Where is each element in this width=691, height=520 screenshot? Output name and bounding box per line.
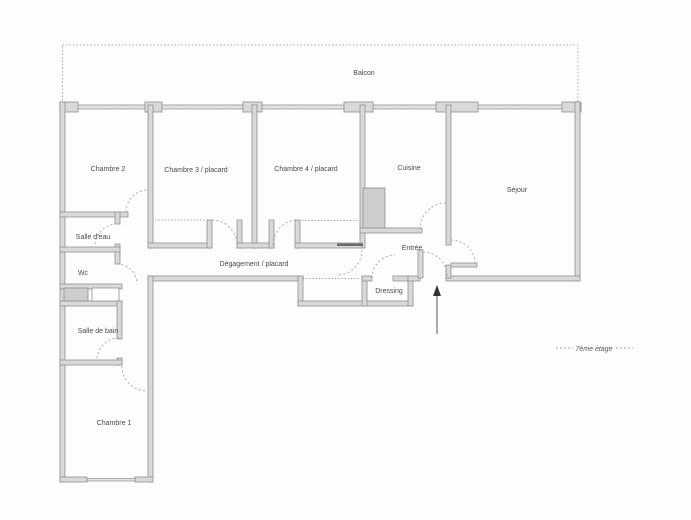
room-label-dressing: Dressing bbox=[375, 288, 403, 295]
wall-living-south bbox=[446, 276, 580, 281]
window-bedroom1 bbox=[87, 479, 135, 482]
door-arc-living bbox=[451, 240, 475, 264]
balcony-outline bbox=[63, 45, 579, 105]
wall-living-west bbox=[446, 265, 451, 278]
room-label-bathroom: Salle de bain bbox=[78, 328, 119, 335]
door-arc-bedroom4 bbox=[273, 220, 298, 245]
walls bbox=[60, 102, 581, 482]
wall-exterior-right bbox=[575, 102, 580, 281]
wall-corridor-north bbox=[237, 243, 274, 248]
wall-bathroom-south bbox=[60, 360, 122, 365]
door-jamb bbox=[451, 263, 477, 267]
door-arc-bedroom2 bbox=[126, 190, 148, 212]
wc-shaft bbox=[92, 288, 119, 301]
floor-plan-drawing: Balcon Chambre 2 Chambre 3 / placard Cha… bbox=[0, 0, 691, 520]
door-arc-bedroom1 bbox=[122, 366, 147, 391]
wall-shower-wc bbox=[60, 247, 120, 252]
wall-shower-east bbox=[115, 212, 120, 224]
door-arc-front-door bbox=[423, 252, 447, 276]
wall-dressing-north bbox=[393, 276, 408, 281]
wall-dressing-north bbox=[362, 276, 372, 281]
closet-lines bbox=[155, 220, 360, 279]
wall-leg-east bbox=[148, 276, 153, 482]
door-arc-wc bbox=[117, 264, 137, 284]
door-arc-bedroom3 bbox=[212, 220, 237, 245]
wall-pier bbox=[344, 102, 373, 112]
wall-bedroom1-south bbox=[135, 477, 153, 482]
door-arc-kitchen bbox=[420, 203, 446, 229]
room-label-shower: Salle d'eau bbox=[76, 234, 111, 241]
room-label-bedroom1: Chambre 1 bbox=[97, 420, 132, 427]
entrance-door-leaf bbox=[418, 250, 423, 278]
wall-dressing-south bbox=[298, 301, 413, 306]
wall-corridor-south bbox=[148, 276, 303, 281]
entrance-arrow bbox=[433, 285, 441, 334]
floor-plan-page: Balcon Chambre 2 Chambre 3 / placard Cha… bbox=[0, 0, 691, 520]
door-arc-hallway-entrance bbox=[337, 250, 362, 275]
wall-bedroom3-bedroom4 bbox=[252, 105, 257, 248]
room-label-kitchen: Cuisine bbox=[397, 165, 420, 172]
room-label-wc: Wc bbox=[78, 270, 89, 277]
room-label-bedroom2: Chambre 2 bbox=[91, 166, 126, 173]
wall-corridor-north bbox=[148, 243, 212, 248]
room-label-bedroom3: Chambre 3 / placard bbox=[164, 167, 228, 174]
room-label-hallway: Dégagement / placard bbox=[220, 261, 289, 268]
wall-bathroom-north bbox=[60, 301, 122, 306]
door-arc-bathroom bbox=[97, 338, 119, 360]
wall-pier bbox=[436, 102, 478, 112]
wall-kitchen-south bbox=[360, 228, 422, 233]
floor-note: 7ème étage bbox=[576, 346, 613, 353]
window-top-wall bbox=[62, 105, 578, 109]
room-labels: Balcon Chambre 2 Chambre 3 / placard Cha… bbox=[76, 70, 613, 427]
door-jamb bbox=[207, 220, 212, 248]
room-label-bedroom4: Chambre 4 / placard bbox=[274, 166, 338, 173]
door-arc-dressing bbox=[372, 255, 395, 278]
wall-bedroom2-bedroom3 bbox=[148, 105, 153, 248]
entrance-arrow-head bbox=[433, 285, 441, 296]
wall-bedroom1-south bbox=[60, 477, 87, 482]
wc-duct bbox=[64, 288, 88, 301]
wall-kitchen-living bbox=[446, 105, 451, 245]
wall-pier bbox=[145, 102, 162, 112]
room-label-living: Séjour bbox=[507, 187, 528, 194]
wall-wc-east bbox=[115, 252, 120, 264]
kitchen-duct bbox=[363, 188, 385, 228]
room-label-entrance: Entrée bbox=[402, 245, 423, 252]
balcony-label: Balcon bbox=[353, 70, 375, 77]
door-header bbox=[337, 244, 363, 247]
